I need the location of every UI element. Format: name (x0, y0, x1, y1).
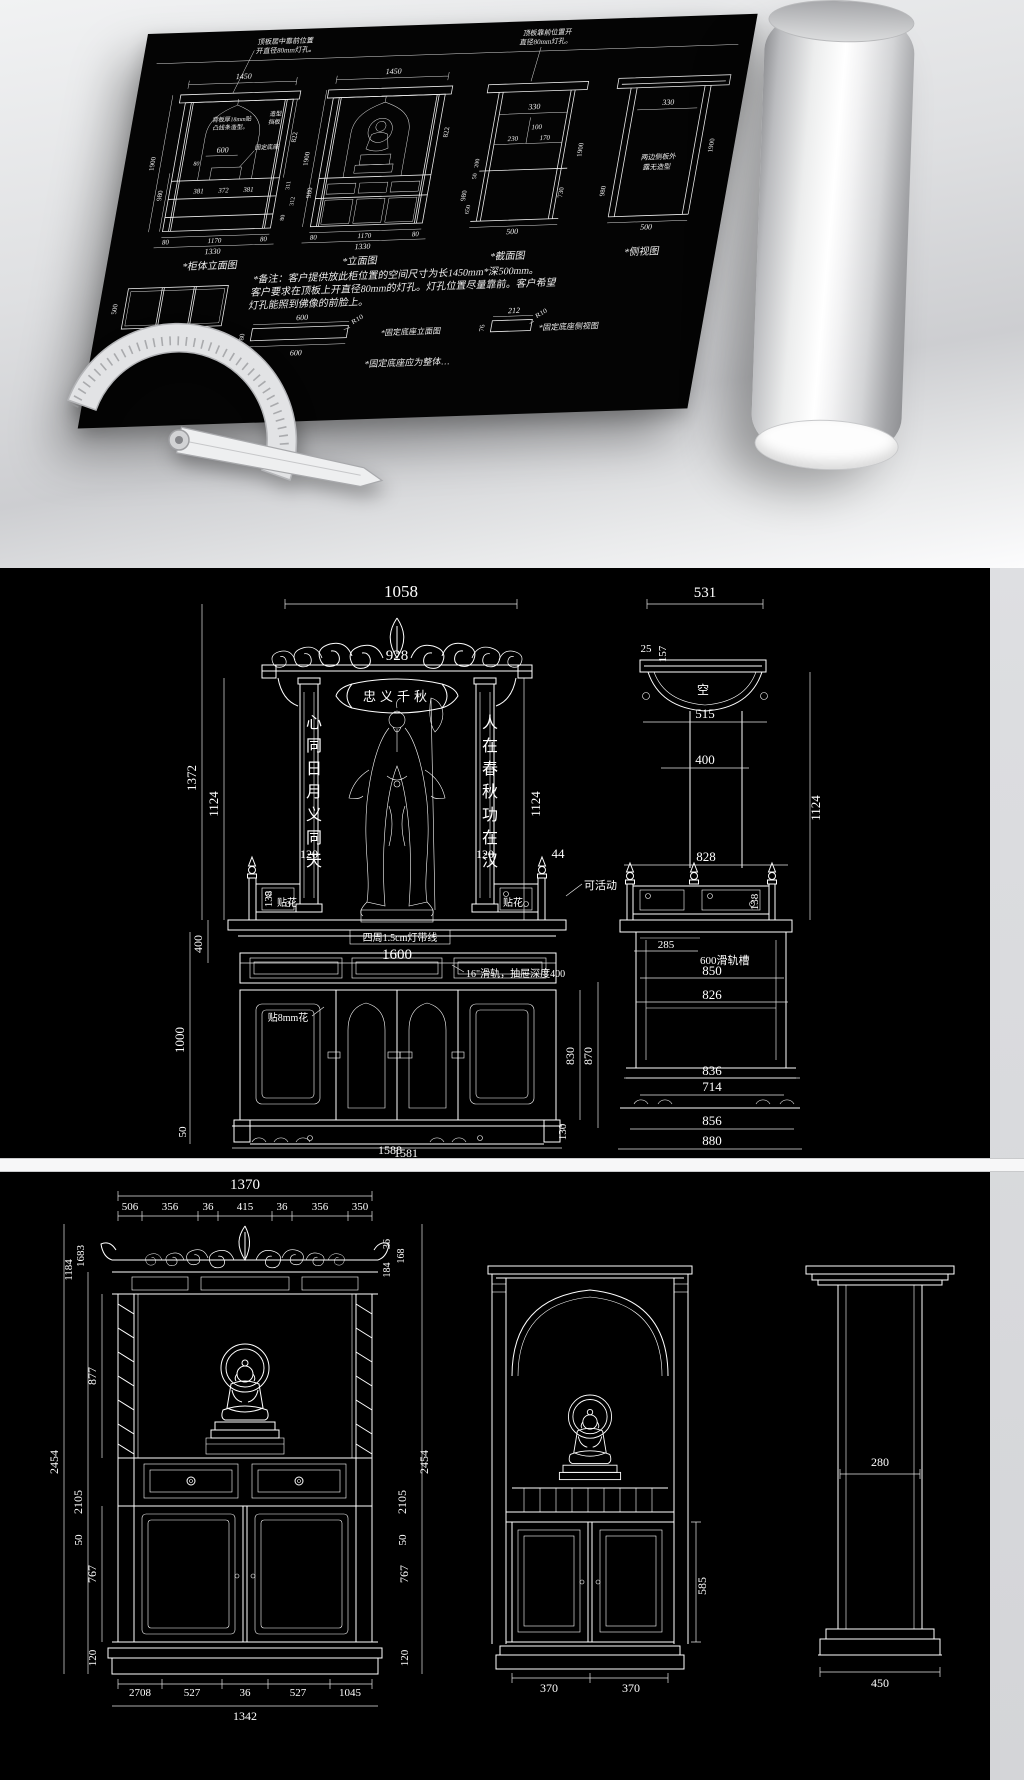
dim-120-right: 120 (399, 1649, 411, 1666)
fixed-base-side (490, 315, 535, 331)
dim-850: 850 (702, 963, 722, 978)
bottom-drawing-panel: 1370 506 356 36 415 36 356 350 1683 1184… (0, 1172, 990, 1780)
dim-157: 157 (657, 645, 669, 662)
dim-80b: 80 (193, 161, 200, 167)
dim-381: 381 (193, 187, 205, 195)
left-column-couplet: 心同日月义同天 (299, 714, 323, 875)
dim-285: 285 (658, 939, 675, 951)
dim-830: 830 (563, 1047, 577, 1065)
dim-1370: 1370 (230, 1177, 260, 1193)
dim-500: 500 (505, 227, 519, 236)
dim-36: 36 (382, 1239, 393, 1249)
shrine-front-elevation (101, 1226, 389, 1674)
dim-400-side: 400 (695, 752, 715, 767)
dim-2454-left: 2454 (47, 1450, 61, 1474)
dim-2105-left: 2105 (71, 1490, 85, 1514)
label-base-side: *固定底座侧视图 (538, 320, 600, 332)
dim-836: 836 (702, 1063, 722, 1078)
bottom-dim: 1045 (339, 1687, 362, 1699)
dim-980b: 980 (305, 187, 315, 198)
dim-1450: 1450 (235, 72, 253, 81)
seg-dim: 415 (237, 1201, 254, 1213)
dim-100: 100 (531, 123, 543, 131)
dim-168: 168 (396, 1249, 407, 1264)
dim-120-left: 120 (87, 1649, 99, 1666)
dim-531: 531 (694, 585, 717, 601)
note-backboard-2: 凸线条造型。 (212, 123, 249, 132)
dim-714: 714 (702, 1079, 722, 1094)
dim-130: 130 (557, 1123, 569, 1140)
dim-1058: 1058 (384, 582, 418, 601)
note-shape-2: 挡板 (268, 118, 281, 126)
dim-138-side: 138 (749, 893, 761, 910)
seg-dim: 36 (203, 1201, 215, 1213)
bottom-dim: 527 (184, 1687, 201, 1699)
dim-600b: 600 (295, 313, 309, 322)
dim-1124-right: 1124 (528, 791, 543, 817)
dim-2105-right: 2105 (395, 1490, 409, 1514)
dim-828: 828 (696, 849, 716, 864)
dim-980: 980 (155, 190, 165, 201)
dim-730: 730 (556, 187, 566, 198)
label-cabinet-elevation: *柜体立面图 (181, 258, 238, 273)
label-empty: 空 (697, 683, 709, 697)
seg-dim: 36 (277, 1201, 289, 1213)
seg-dim: 350 (352, 1201, 369, 1213)
dim-312: 312 (289, 197, 297, 206)
note-side-2: 露无造型 (642, 162, 672, 172)
dim-1124-side: 1124 (808, 795, 823, 821)
dim-650: 650 (465, 205, 473, 214)
dim-76: 76 (478, 324, 487, 332)
dim-515: 515 (695, 706, 715, 721)
bottom-dim: 2708 (129, 1687, 152, 1699)
dim-212: 212 (507, 306, 521, 315)
screenshot-root: 1450 顶板居中靠前位置 开直径80mm灯孔。 1900 980 822 31… (0, 0, 1024, 1780)
dim-370-left: 370 (540, 1681, 558, 1695)
middle-drawing-panel: 忠义千秋 928 (0, 568, 990, 1158)
dim-1330b: 1330 (354, 242, 372, 251)
dim-230: 230 (507, 135, 519, 143)
dim-500c: 500 (110, 303, 120, 314)
dim-500b: 500 (639, 222, 653, 231)
right-column-couplet: 人在春秋功在汉 (475, 714, 499, 875)
dim-880: 880 (702, 1133, 722, 1148)
dim-372: 372 (217, 186, 229, 194)
dim-r10b: R10 (534, 307, 548, 320)
dim-184: 184 (382, 1263, 393, 1278)
seg-dim: 506 (122, 1201, 139, 1213)
dim-1900: 1900 (147, 156, 157, 171)
altar-side-view (620, 660, 800, 1108)
note-flower-decal: 贴8mm花 (268, 1011, 309, 1024)
bottom-dim: 527 (290, 1687, 307, 1699)
dim-50-right: 50 (397, 1534, 409, 1546)
dim-980d: 980 (598, 185, 608, 196)
seg-dim: 356 (162, 1201, 179, 1213)
dim-311: 311 (285, 181, 293, 190)
section-drawing (463, 45, 595, 227)
front-railing (248, 857, 547, 920)
note-drawer-slide: 16"滑轨，抽屉深度400 (466, 967, 565, 980)
dim-381b: 381 (242, 186, 254, 194)
dim-1683: 1683 (75, 1245, 87, 1268)
seg-dim: 356 (312, 1201, 329, 1213)
bottom-dim: 36 (240, 1687, 252, 1699)
dim-138-front: 138 (263, 890, 275, 907)
dim-80c: 80 (161, 238, 170, 246)
dim-767-right: 767 (397, 1565, 411, 1583)
dim-80f: 80 (411, 230, 420, 238)
note-shape-1: 造型 (269, 110, 282, 118)
dim-877: 877 (85, 1367, 99, 1385)
label-section: *截面图 (489, 249, 526, 263)
dim-450: 450 (871, 1676, 889, 1690)
dim-600: 600 (216, 145, 230, 154)
dim-50: 50 (472, 173, 479, 179)
dim-822b: 822 (442, 126, 452, 137)
dim-50: 50 (177, 1126, 189, 1138)
note-lamp-c2: 直径80mm灯孔。 (519, 36, 573, 47)
dim-25: 25 (641, 643, 653, 655)
label-elevation: *立面图 (341, 254, 378, 268)
dim-1170b: 1170 (357, 232, 373, 240)
dim-826: 826 (702, 987, 722, 1002)
panel-separator (0, 1158, 1024, 1172)
dim-585: 585 (695, 1577, 709, 1595)
dim-44: 44 (552, 846, 566, 861)
dim-1600: 1600 (382, 947, 412, 963)
note-fixed-base: 固定底座 (254, 143, 279, 152)
protractor-tool (14, 322, 394, 492)
dim-80d: 80 (259, 235, 268, 243)
paper-roll (750, 4, 916, 465)
dim-1184: 1184 (63, 1259, 75, 1281)
note-lamp-c1: 顶板靠前位置开 (522, 27, 572, 38)
label-decal-left: 贴花 (277, 896, 297, 909)
note-lamp-hole-2: 开直径80mm灯孔。 (255, 44, 316, 55)
shrine-cad-drawing: 1370 506 356 36 415 36 356 350 1683 1184… (0, 1172, 990, 1780)
dim-200: 200 (474, 159, 482, 168)
dim-2454-right: 2454 (417, 1450, 431, 1474)
dim-870: 870 (581, 1047, 595, 1065)
guan-yu-figure (349, 698, 445, 922)
note-side-1: 两边侧板外 (640, 152, 676, 162)
dim-822: 822 (290, 131, 300, 142)
top-section: 1450 顶板居中靠前位置 开直径80mm灯孔。 1900 980 822 31… (0, 0, 1024, 568)
dim-330: 330 (528, 102, 542, 111)
dim-980c: 980 (459, 190, 469, 201)
dim-1450b: 1450 (385, 67, 403, 76)
dim-1170: 1170 (207, 237, 223, 245)
dim-1342: 1342 (233, 1709, 257, 1723)
dim-370-right: 370 (622, 1681, 640, 1695)
note-lamp-hole-1: 顶板居中靠前位置 (257, 36, 314, 47)
dim-1900b: 1900 (301, 151, 311, 166)
dim-1581: 1581 (394, 1146, 418, 1158)
dim-856: 856 (702, 1113, 722, 1128)
dim-1900c: 1900 (575, 142, 585, 157)
note-movable: 可活动 (584, 879, 617, 892)
dim-1330: 1330 (204, 247, 222, 256)
label-decal-right: 贴花 (503, 896, 523, 909)
dim-1372: 1372 (184, 765, 199, 791)
dim-767-left: 767 (85, 1565, 99, 1583)
shrine-side-elevation (488, 1266, 692, 1669)
note-led-strip: 四周1.5cm灯带线 (363, 931, 438, 944)
protractor-screw (175, 436, 183, 444)
dim-80e: 80 (309, 234, 318, 242)
elevation-drawing (300, 72, 456, 243)
dim-330b: 330 (662, 98, 676, 107)
label-side-view: *侧视图 (623, 244, 660, 258)
dim-1124-left: 1124 (206, 791, 221, 817)
dim-50-left: 50 (73, 1534, 85, 1546)
dim-400-front: 400 (191, 935, 205, 953)
dim-1000: 1000 (172, 1027, 187, 1053)
dim-80: 80 (280, 215, 287, 221)
dim-1900d: 1900 (706, 138, 716, 153)
dim-928: 928 (386, 648, 409, 664)
dim-280: 280 (871, 1455, 889, 1469)
dim-170: 170 (539, 134, 551, 142)
